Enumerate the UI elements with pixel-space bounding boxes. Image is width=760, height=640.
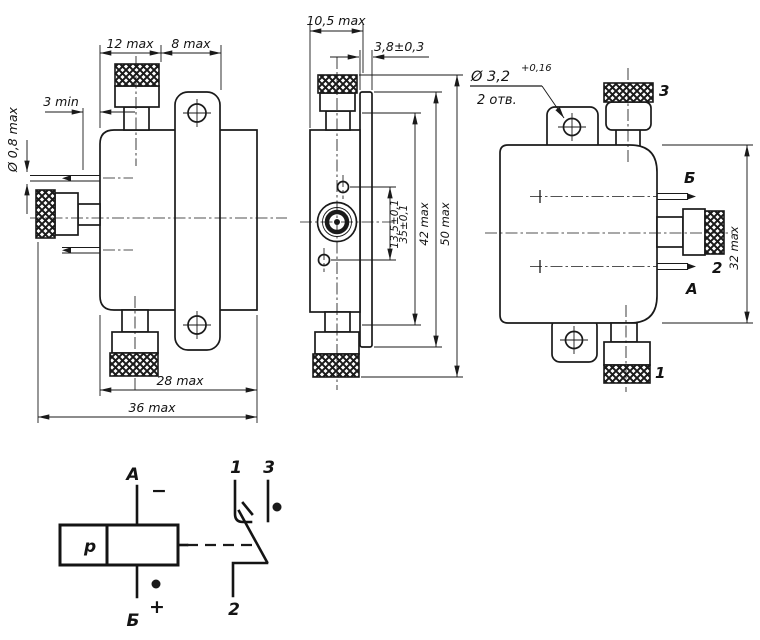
knob-label-3: 3	[659, 82, 669, 100]
relay-body-back	[500, 145, 657, 323]
dim-35: 35±0,1	[398, 205, 410, 244]
dim-28-max: 28 max	[156, 373, 204, 388]
mounting-bracket-front	[175, 92, 220, 350]
adjust-knob-bottom-side	[313, 312, 359, 377]
drawing-sheet: 12 max 8 max 3 min Ø 0,8 max 28 max 36 m…	[0, 0, 760, 640]
dim-10-5-max: 10,5 max	[306, 13, 366, 28]
dim-42-max: 42 max	[417, 202, 431, 246]
flange-plate-side	[360, 92, 372, 347]
adjust-knob-bottom-back	[604, 323, 650, 383]
relay-technical-drawing: 12 max 8 max 3 min Ø 0,8 max 28 max 36 m…	[0, 0, 760, 640]
adjust-knob-top-back	[604, 83, 653, 146]
coil-terminals: А Б − +	[124, 465, 167, 631]
relay-coil-symbol: р	[60, 525, 178, 565]
dim-3-8: 3,8±0,3	[374, 39, 424, 54]
polarity-dot-b	[152, 580, 161, 589]
terminal-a-label: А	[124, 465, 139, 485]
adjust-knob-right-back	[657, 209, 724, 255]
pin-label-b: Б	[684, 169, 695, 187]
adjust-knob-top-side	[318, 75, 357, 130]
contact-3-label: 3	[263, 458, 275, 478]
adjust-knob-left-front	[36, 190, 100, 238]
contact-1-label: 1	[230, 458, 242, 478]
contact-group: 1 2 3	[228, 458, 281, 620]
coil-label: р	[83, 537, 96, 557]
back-view: 32 max Ø 3,2 +0,16 2 отв. Б 2 А 3 1	[470, 63, 753, 392]
circuit-schematic: р А Б − + 1 2 3	[60, 458, 282, 631]
dim-32-max: 32 max	[727, 226, 741, 270]
dim-50-max: 50 max	[438, 202, 452, 246]
hole-quantity-text: 2 отв.	[477, 93, 517, 108]
minus-sign: −	[151, 480, 167, 502]
pin-label-2: 2	[712, 259, 722, 277]
dim-36-max: 36 max	[128, 400, 176, 415]
hole-diameter-text: Ø 3,2	[470, 69, 510, 85]
side-view: 10,5 max 3,8±0,3 13,5±0,1 35±0,1 42 max …	[300, 13, 463, 390]
adjust-knob-top-front	[115, 64, 159, 130]
dim-8-max: 8 max	[171, 36, 211, 51]
contact-2-label: 2	[228, 600, 240, 620]
dim-3-min: 3 min	[43, 94, 79, 109]
knob-label-1: 1	[655, 364, 665, 382]
dim-12-max: 12 max	[106, 36, 154, 51]
terminal-b-label: Б	[127, 611, 140, 631]
dim-pin-diameter: Ø 0,8 max	[5, 106, 20, 173]
pin-label-a: А	[685, 280, 698, 298]
front-view: 12 max 8 max 3 min Ø 0,8 max 28 max 36 m…	[5, 36, 287, 423]
hole-tolerance-text: +0,16	[521, 63, 552, 74]
armature-line	[239, 511, 267, 562]
polarity-dot-3	[273, 503, 282, 512]
adjust-knob-bottom-front	[110, 310, 158, 376]
plus-sign: +	[149, 596, 165, 618]
